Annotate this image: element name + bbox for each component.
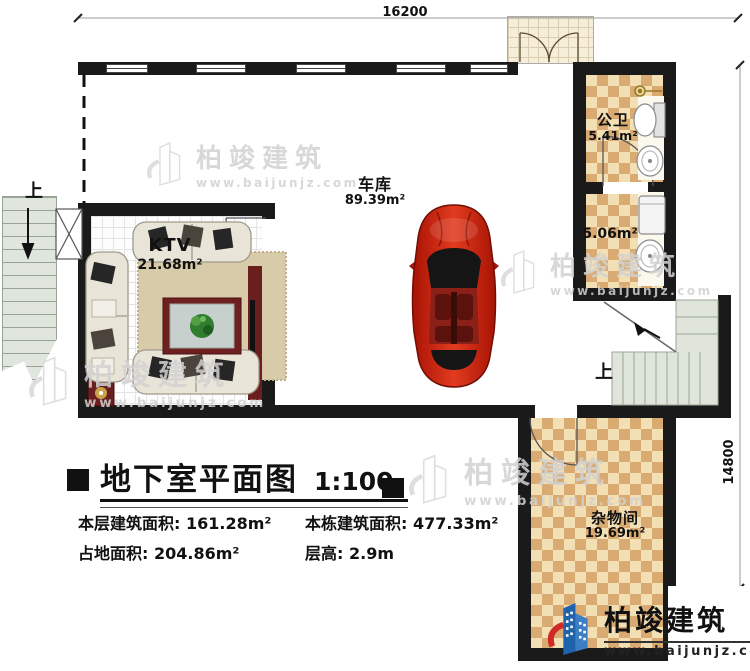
- company-logo: 柏竣建筑 www.baijunjz.com: [546, 599, 750, 659]
- title-square-right: [382, 478, 404, 498]
- garage-window: [196, 64, 246, 73]
- wall: [648, 182, 676, 194]
- watermark-building-icon: [408, 450, 455, 508]
- car: [409, 205, 499, 387]
- logo-url: www.baijunjz.com: [604, 641, 750, 659]
- watermark: 柏竣建筑www.baijunjz.com: [28, 352, 266, 410]
- watermark-building-icon: [146, 138, 188, 190]
- garage-window: [470, 64, 508, 73]
- ktv-label: KTV 21.68m²: [118, 236, 222, 273]
- bath2-label: 5.06m²: [580, 226, 640, 242]
- stat-land-area: 占地面积: 204.86m²: [78, 540, 239, 564]
- dimension-right: 14800: [719, 422, 735, 502]
- dimension-top: 16200: [350, 2, 460, 21]
- public-bath-label: 公卫 5.41m²: [584, 112, 642, 144]
- interior-stairs: [604, 300, 718, 405]
- page-title: 地下室平面图: [100, 454, 298, 499]
- wall: [262, 203, 275, 219]
- wall: [78, 203, 275, 216]
- watermark: 柏竣建筑www.baijunjz.com: [500, 246, 713, 298]
- watermark: 柏竣建筑www.baijunjz.com: [408, 450, 646, 508]
- wall: [718, 295, 731, 418]
- wall: [580, 62, 676, 75]
- watermark-building-icon: [28, 352, 75, 410]
- logo-name: 柏竣建筑: [604, 599, 750, 639]
- garage-window: [106, 64, 148, 73]
- wall: [577, 405, 731, 418]
- watermark: 柏竣建筑www.baijunjz.com: [146, 138, 359, 190]
- logo-building-icon: [546, 600, 598, 658]
- entry-porch-floor: [507, 16, 594, 64]
- basement-floor-plan: 16200 14800 车库 89.39m² KTV 21.68m² 公卫 5.…: [0, 0, 750, 671]
- title-underline: [100, 499, 408, 508]
- wall: [573, 182, 603, 194]
- wall: [518, 405, 531, 650]
- title-square-left: [67, 469, 89, 491]
- watermark-building-icon: [500, 246, 542, 298]
- stat-building-area: 本栋建筑面积: 477.33m²: [305, 510, 498, 534]
- exterior-stairs-up-label: 上: [22, 182, 46, 203]
- stat-floor-height: 层高: 2.9m: [305, 540, 394, 564]
- title-row: 地下室平面图 1:100: [100, 454, 394, 499]
- storage-label: 杂物间 19.69m²: [568, 510, 662, 542]
- stat-floor-area: 本层建筑面积: 161.28m²: [78, 510, 271, 534]
- interior-stairs-up-label: 上: [592, 363, 616, 384]
- garage-window: [396, 64, 446, 73]
- wall: [275, 405, 518, 418]
- wall: [518, 405, 535, 418]
- garage-window: [296, 64, 346, 73]
